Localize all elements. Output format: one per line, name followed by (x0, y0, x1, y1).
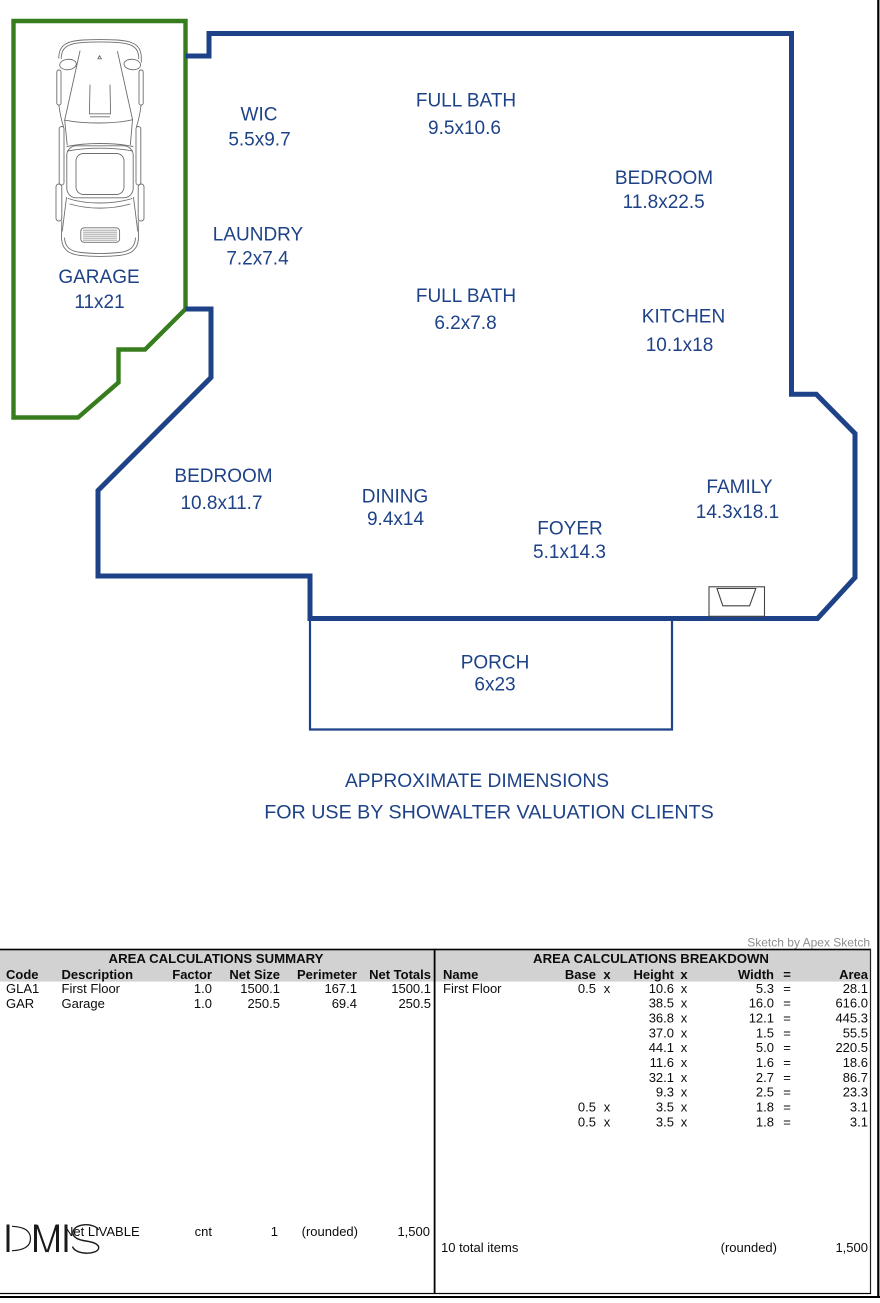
svg-text:FULL BATH: FULL BATH (416, 286, 516, 307)
svg-text:5.3: 5.3 (756, 981, 774, 996)
svg-text:x: x (681, 1025, 688, 1040)
svg-text:3.5: 3.5 (656, 1115, 674, 1130)
svg-text:86.7: 86.7 (843, 1070, 868, 1085)
svg-text:DINING: DINING (362, 487, 429, 508)
svg-text:1.5: 1.5 (756, 1025, 774, 1040)
svg-text:0.5: 0.5 (578, 981, 596, 996)
svg-text:1,500: 1,500 (835, 1240, 868, 1255)
svg-text:16.0: 16.0 (749, 996, 774, 1011)
svg-text:cnt: cnt (195, 1224, 213, 1239)
svg-text:10 total items: 10 total items (441, 1240, 519, 1255)
svg-text:616.0: 616.0 (835, 996, 868, 1011)
svg-text:11x21: 11x21 (74, 292, 124, 313)
svg-text:AREA CALCULATIONS SUMMARY: AREA CALCULATIONS SUMMARY (109, 951, 324, 966)
svg-text:445.3: 445.3 (835, 1011, 868, 1026)
svg-text:=: = (783, 981, 791, 996)
svg-text:9.5x10.6: 9.5x10.6 (428, 118, 501, 139)
svg-text:=: = (783, 1011, 791, 1026)
svg-text:x: x (604, 1115, 611, 1130)
svg-text:5.5x9.7: 5.5x9.7 (228, 130, 290, 151)
svg-text:(rounded): (rounded) (721, 1240, 777, 1255)
svg-text:x: x (681, 1040, 688, 1055)
svg-text:1: 1 (271, 1224, 278, 1239)
svg-text:=: = (783, 1055, 791, 1070)
svg-text:=: = (783, 1100, 791, 1115)
svg-text:x: x (681, 996, 688, 1011)
svg-text:First Floor: First Floor (62, 981, 121, 996)
svg-text:Height: Height (634, 967, 675, 982)
svg-text:3.5: 3.5 (656, 1100, 674, 1115)
svg-text:AREA CALCULATIONS BREAKDOWN: AREA CALCULATIONS BREAKDOWN (533, 951, 769, 966)
svg-text:(rounded): (rounded) (302, 1224, 358, 1239)
svg-text:5.1x14.3: 5.1x14.3 (533, 542, 606, 563)
svg-text:14.3x18.1: 14.3x18.1 (696, 502, 779, 523)
svg-text:APPROXIMATE DIMENSIONS: APPROXIMATE DIMENSIONS (345, 771, 609, 792)
svg-text:FULL BATH: FULL BATH (416, 91, 516, 112)
svg-text:=: = (783, 1040, 791, 1055)
svg-text:1.0: 1.0 (194, 981, 212, 996)
svg-text:Garage: Garage (62, 996, 105, 1011)
svg-text:37.0: 37.0 (649, 1025, 674, 1040)
svg-text:12.1: 12.1 (749, 1011, 774, 1026)
svg-text:LAUNDRY: LAUNDRY (213, 225, 304, 246)
svg-text:1.8: 1.8 (756, 1115, 774, 1130)
svg-text:=: = (783, 1115, 791, 1130)
svg-text:23.3: 23.3 (843, 1085, 868, 1100)
svg-text:=: = (783, 1025, 791, 1040)
svg-text:Description: Description (62, 967, 134, 982)
svg-text:9.4x14: 9.4x14 (367, 509, 424, 530)
svg-text:69.4: 69.4 (332, 996, 357, 1011)
svg-text:BEDROOM: BEDROOM (615, 168, 713, 189)
svg-text:1500.1: 1500.1 (391, 981, 431, 996)
svg-text:Width: Width (738, 967, 774, 982)
svg-text:GLA1: GLA1 (6, 981, 39, 996)
svg-text:x: x (680, 967, 688, 982)
svg-text:55.5: 55.5 (843, 1025, 868, 1040)
svg-text:Base: Base (565, 967, 596, 982)
svg-text:=: = (783, 996, 791, 1011)
svg-text:Area: Area (839, 967, 869, 982)
svg-text:10.6: 10.6 (649, 981, 674, 996)
svg-text:BEDROOM: BEDROOM (174, 466, 272, 487)
svg-text:11.8x22.5: 11.8x22.5 (623, 192, 705, 213)
svg-text:Code: Code (6, 967, 39, 982)
svg-text:x: x (603, 967, 611, 982)
svg-text:Net Size: Net Size (229, 967, 280, 982)
svg-text:250.5: 250.5 (398, 996, 431, 1011)
svg-text:x: x (681, 1100, 688, 1115)
svg-text:44.1: 44.1 (649, 1040, 674, 1055)
svg-text:220.5: 220.5 (835, 1040, 868, 1055)
svg-text:PORCH: PORCH (461, 653, 530, 674)
svg-text:1.8: 1.8 (756, 1100, 774, 1115)
svg-text:FOR USE BY SHOWALTER VALUATION: FOR USE BY SHOWALTER VALUATION CLIENTS (264, 802, 714, 824)
svg-text:1.0: 1.0 (194, 996, 212, 1011)
svg-text:x: x (681, 1085, 688, 1100)
svg-text:0.5: 0.5 (578, 1115, 596, 1130)
svg-text:=: = (783, 1070, 791, 1085)
svg-text:=: = (783, 1085, 791, 1100)
svg-text:KITCHEN: KITCHEN (642, 307, 725, 328)
svg-text:10.8x11.7: 10.8x11.7 (180, 493, 262, 514)
svg-text:GARAGE: GARAGE (58, 267, 139, 288)
svg-text:250.5: 250.5 (247, 996, 280, 1011)
svg-text:Factor: Factor (172, 967, 212, 982)
svg-text:167.1: 167.1 (324, 981, 357, 996)
svg-text:Sketch by Apex Sketch: Sketch by Apex Sketch (747, 936, 870, 950)
svg-text:Perimeter: Perimeter (297, 967, 357, 982)
svg-text:3.1: 3.1 (850, 1100, 868, 1115)
svg-text:0.5: 0.5 (578, 1100, 596, 1115)
svg-text:36.8: 36.8 (649, 1011, 674, 1026)
svg-text:x: x (681, 1055, 688, 1070)
svg-text:x: x (681, 1070, 688, 1085)
svg-text:x: x (604, 981, 611, 996)
svg-text:5.0: 5.0 (756, 1040, 774, 1055)
svg-text:2.7: 2.7 (756, 1070, 774, 1085)
svg-text:38.5: 38.5 (649, 996, 674, 1011)
svg-text:Name: Name (443, 967, 478, 982)
svg-text:x: x (681, 981, 688, 996)
svg-text:18.6: 18.6 (843, 1055, 868, 1070)
svg-text:10.1x18: 10.1x18 (646, 335, 714, 356)
svg-text:GAR: GAR (6, 996, 34, 1011)
svg-text:WIC: WIC (241, 105, 278, 126)
svg-text:28.1: 28.1 (843, 981, 868, 996)
svg-text:x: x (681, 1115, 688, 1130)
svg-text:FOYER: FOYER (537, 519, 602, 540)
svg-text:6.2x7.8: 6.2x7.8 (434, 313, 496, 334)
svg-text:32.1: 32.1 (649, 1070, 674, 1085)
svg-text:1.6: 1.6 (756, 1055, 774, 1070)
svg-text:6x23: 6x23 (474, 675, 515, 696)
svg-text:1500.1: 1500.1 (240, 981, 280, 996)
svg-text:7.2x7.4: 7.2x7.4 (226, 249, 289, 270)
svg-text:x: x (604, 1100, 611, 1115)
svg-text:2.5: 2.5 (756, 1085, 774, 1100)
svg-text:First Floor: First Floor (443, 981, 502, 996)
svg-text:Net Totals: Net Totals (369, 967, 431, 982)
svg-text:x: x (681, 1011, 688, 1026)
svg-text:11.6: 11.6 (650, 1055, 674, 1070)
svg-text:1,500: 1,500 (397, 1224, 430, 1239)
svg-text:9.3: 9.3 (656, 1085, 674, 1100)
svg-text:FAMILY: FAMILY (706, 477, 772, 498)
svg-text:3.1: 3.1 (850, 1115, 868, 1130)
svg-text:=: = (783, 967, 791, 982)
